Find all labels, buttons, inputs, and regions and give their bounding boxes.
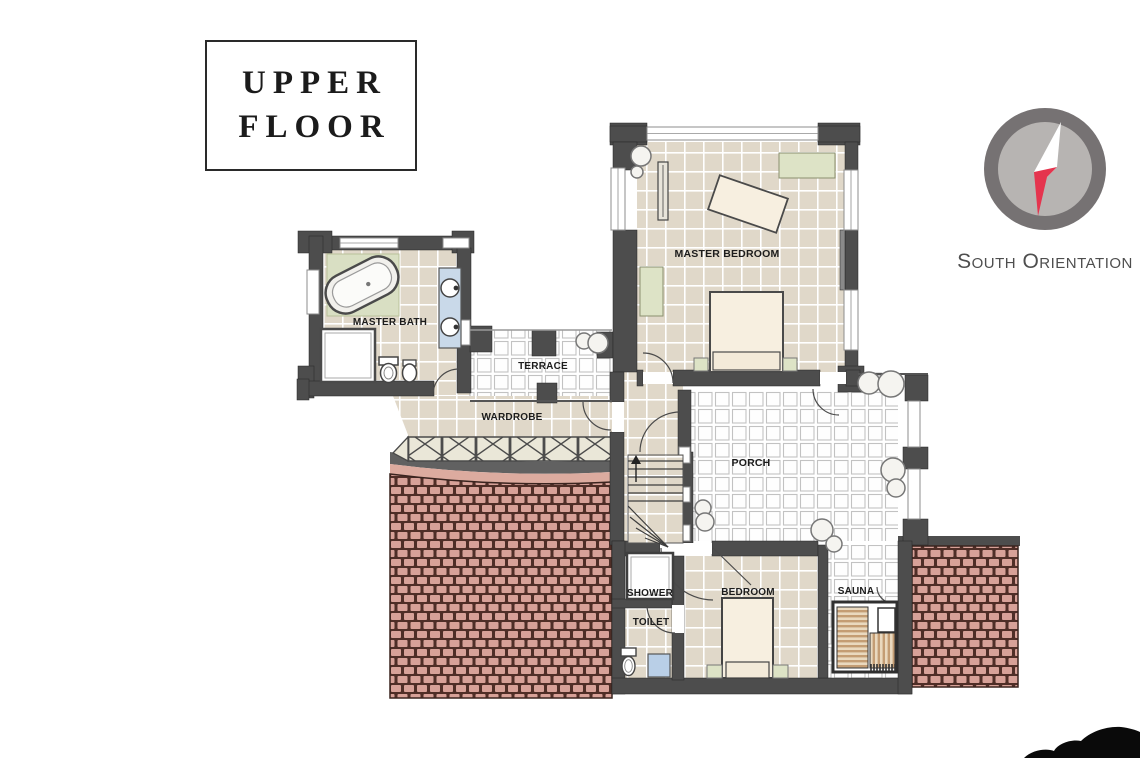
nightstand — [707, 665, 722, 678]
wc-sink — [648, 654, 670, 677]
label-sauna: SAUNA — [838, 586, 875, 597]
x-brace-railing — [408, 437, 612, 461]
master-bed — [694, 292, 797, 372]
label-shower: SHOWER — [627, 588, 674, 599]
sauna-heater-grate — [871, 664, 895, 671]
dresser — [779, 153, 835, 178]
toilet-fixture-bath — [379, 357, 398, 383]
bath-window-top2 — [443, 238, 469, 248]
plant-icon — [881, 458, 905, 482]
plant-icon — [631, 166, 643, 178]
vanity-double-sink — [439, 268, 461, 348]
staircase — [628, 455, 683, 547]
label-master-bath: MASTER BATH — [353, 317, 427, 328]
sauna-bench — [837, 607, 868, 668]
title-line-1: UPPER — [242, 62, 387, 106]
compass-orientation-label: South Orientation — [950, 250, 1140, 274]
bidet-fixture — [403, 360, 417, 382]
plant-icon — [588, 333, 608, 353]
porch-window-right1 — [908, 401, 920, 447]
title-box: UPPER FLOOR — [205, 40, 417, 171]
bath-window-left — [307, 270, 319, 314]
label-terrace: TERRACE — [518, 361, 568, 372]
toilet-fixture-wc — [621, 648, 636, 676]
floor-plan-page: MASTER BATH TERRACE WARDROBE MASTER BEDR… — [0, 0, 1140, 758]
wardrobe-door-gap — [612, 402, 624, 432]
label-porch: PORCH — [732, 457, 771, 469]
sauna-stove — [878, 608, 895, 632]
balustrade — [393, 437, 612, 461]
plant-icon — [858, 372, 880, 394]
title-line-2: FLOOR — [238, 106, 390, 150]
porch-floor — [683, 372, 898, 541]
porch-door-gap — [820, 372, 846, 384]
right-roof-tiles — [912, 546, 1018, 687]
nightstand — [783, 358, 797, 371]
floor-plan-drawing: MASTER BATH TERRACE WARDROBE MASTER BEDR… — [0, 0, 1140, 758]
label-toilet: TOILET — [633, 617, 670, 628]
nightstand — [694, 358, 708, 371]
bedroom-sw-door-gap — [643, 372, 673, 384]
porch-window-right2 — [908, 469, 920, 519]
toilet-door-gap — [672, 605, 684, 633]
label-master-bedroom: MASTER BEDROOM — [675, 248, 780, 260]
label-wardrobe: WARDROBE — [481, 412, 542, 423]
nightstand — [773, 665, 788, 678]
plant-icon — [878, 371, 904, 397]
plant-icon — [826, 536, 842, 552]
label-bedroom: BEDROOM — [721, 587, 775, 598]
corner-silhouette — [1024, 727, 1140, 758]
compass — [984, 108, 1106, 230]
plant-icon — [696, 513, 714, 531]
sauna-bench — [870, 633, 895, 668]
plant-icon — [631, 146, 651, 166]
plant-icon — [887, 479, 905, 497]
left-roof-tiles — [390, 474, 612, 698]
cabinet — [640, 267, 663, 316]
sauna-cabin — [833, 602, 897, 672]
bath-shower-tray — [321, 329, 375, 382]
